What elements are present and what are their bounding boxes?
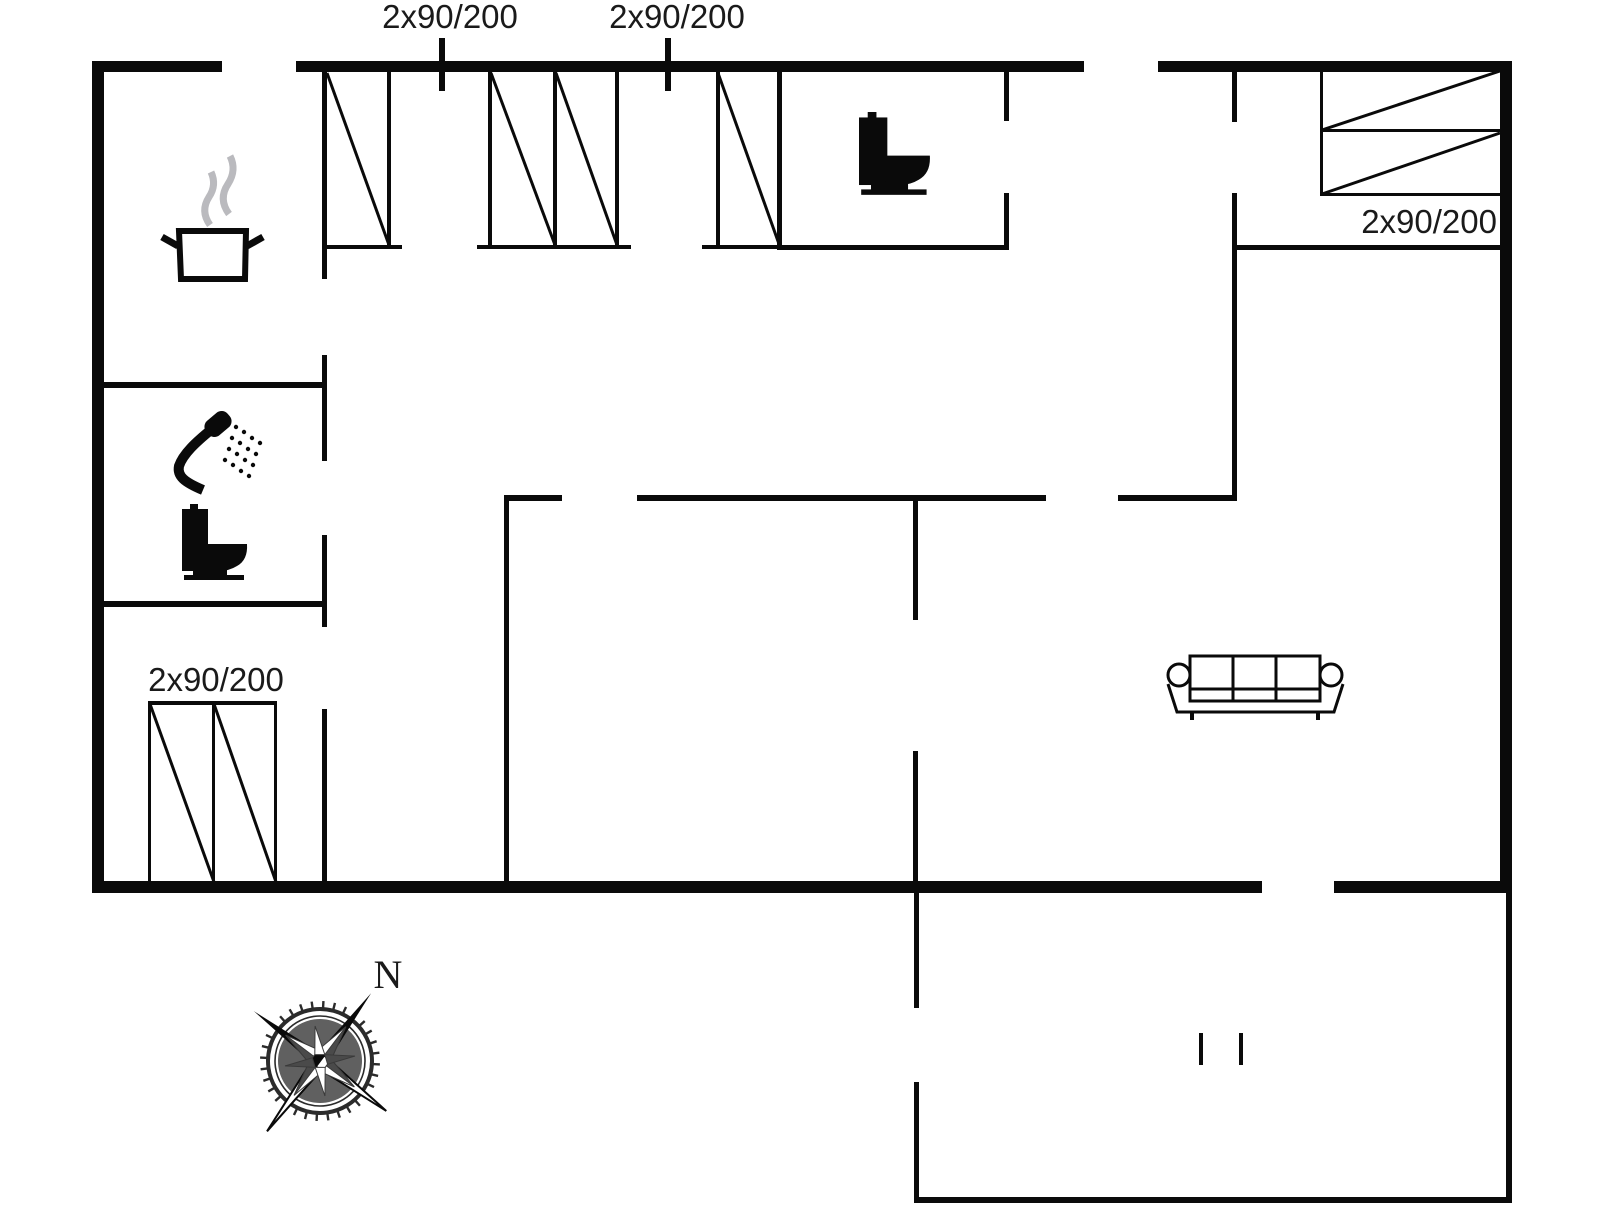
- svg-text:2x90/200: 2x90/200: [148, 661, 284, 698]
- svg-text:N: N: [374, 952, 403, 997]
- svg-text:2x90/200: 2x90/200: [1361, 203, 1497, 240]
- svg-text:2x90/200: 2x90/200: [382, 0, 518, 35]
- svg-text:2x90/200: 2x90/200: [609, 0, 745, 35]
